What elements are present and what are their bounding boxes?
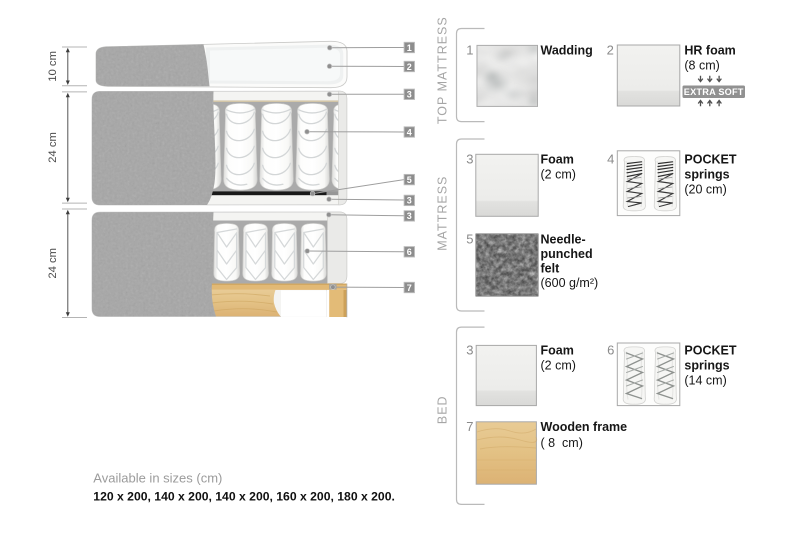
svg-text:5: 5 bbox=[466, 232, 473, 247]
svg-text:(8 cm): (8 cm) bbox=[684, 59, 719, 73]
svg-text:4: 4 bbox=[407, 127, 412, 137]
svg-text:5: 5 bbox=[407, 175, 412, 185]
svg-text:felt: felt bbox=[541, 262, 561, 276]
svg-text:6: 6 bbox=[407, 247, 412, 257]
svg-text:HR foam: HR foam bbox=[684, 44, 735, 58]
svg-text:Wadding: Wadding bbox=[541, 44, 593, 58]
svg-text:4: 4 bbox=[607, 151, 614, 166]
svg-text:(14 cm): (14 cm) bbox=[684, 374, 726, 388]
svg-text:1: 1 bbox=[407, 43, 412, 53]
svg-text:Available in sizes (cm): Available in sizes (cm) bbox=[93, 471, 222, 486]
svg-text:springs: springs bbox=[684, 168, 729, 182]
svg-text:7: 7 bbox=[466, 419, 473, 434]
svg-text:2: 2 bbox=[407, 62, 412, 72]
svg-text:3: 3 bbox=[466, 343, 473, 358]
svg-text:( 8 cm): ( 8 cm) bbox=[541, 436, 583, 450]
svg-text:3: 3 bbox=[407, 90, 412, 100]
svg-text:Wooden frame: Wooden frame bbox=[541, 420, 628, 434]
svg-text:POCKET: POCKET bbox=[684, 152, 736, 166]
svg-text:Foam: Foam bbox=[541, 344, 574, 358]
svg-text:EXTRA SOFT: EXTRA SOFT bbox=[684, 87, 744, 97]
svg-text:springs: springs bbox=[684, 359, 729, 373]
svg-text:24 cm: 24 cm bbox=[47, 248, 59, 279]
svg-text:7: 7 bbox=[407, 283, 412, 293]
svg-text:BED: BED bbox=[436, 395, 450, 424]
svg-text:(2 cm): (2 cm) bbox=[541, 168, 576, 182]
svg-text:(2 cm): (2 cm) bbox=[541, 359, 576, 373]
svg-text:(20 cm): (20 cm) bbox=[684, 183, 726, 197]
svg-text:24 cm: 24 cm bbox=[47, 132, 59, 163]
svg-text:Needle-: Needle- bbox=[541, 233, 586, 247]
svg-text:Foam: Foam bbox=[541, 152, 574, 166]
svg-text:120 x 200, 140 x 200, 140 x 20: 120 x 200, 140 x 200, 140 x 200, 160 x 2… bbox=[93, 490, 395, 504]
svg-text:punched: punched bbox=[541, 247, 593, 261]
svg-text:1: 1 bbox=[466, 43, 473, 58]
svg-text:TOP MATTRESS: TOP MATTRESS bbox=[436, 16, 450, 124]
svg-text:(600 g/m²): (600 g/m²) bbox=[541, 276, 599, 290]
svg-text:MATTRESS: MATTRESS bbox=[436, 176, 450, 251]
svg-text:3: 3 bbox=[407, 211, 412, 221]
svg-text:6: 6 bbox=[607, 343, 614, 358]
svg-text:POCKET: POCKET bbox=[684, 344, 736, 358]
svg-text:3: 3 bbox=[466, 151, 473, 166]
svg-text:2: 2 bbox=[607, 43, 614, 58]
svg-text:10 cm: 10 cm bbox=[47, 51, 59, 82]
svg-text:3: 3 bbox=[407, 196, 412, 206]
